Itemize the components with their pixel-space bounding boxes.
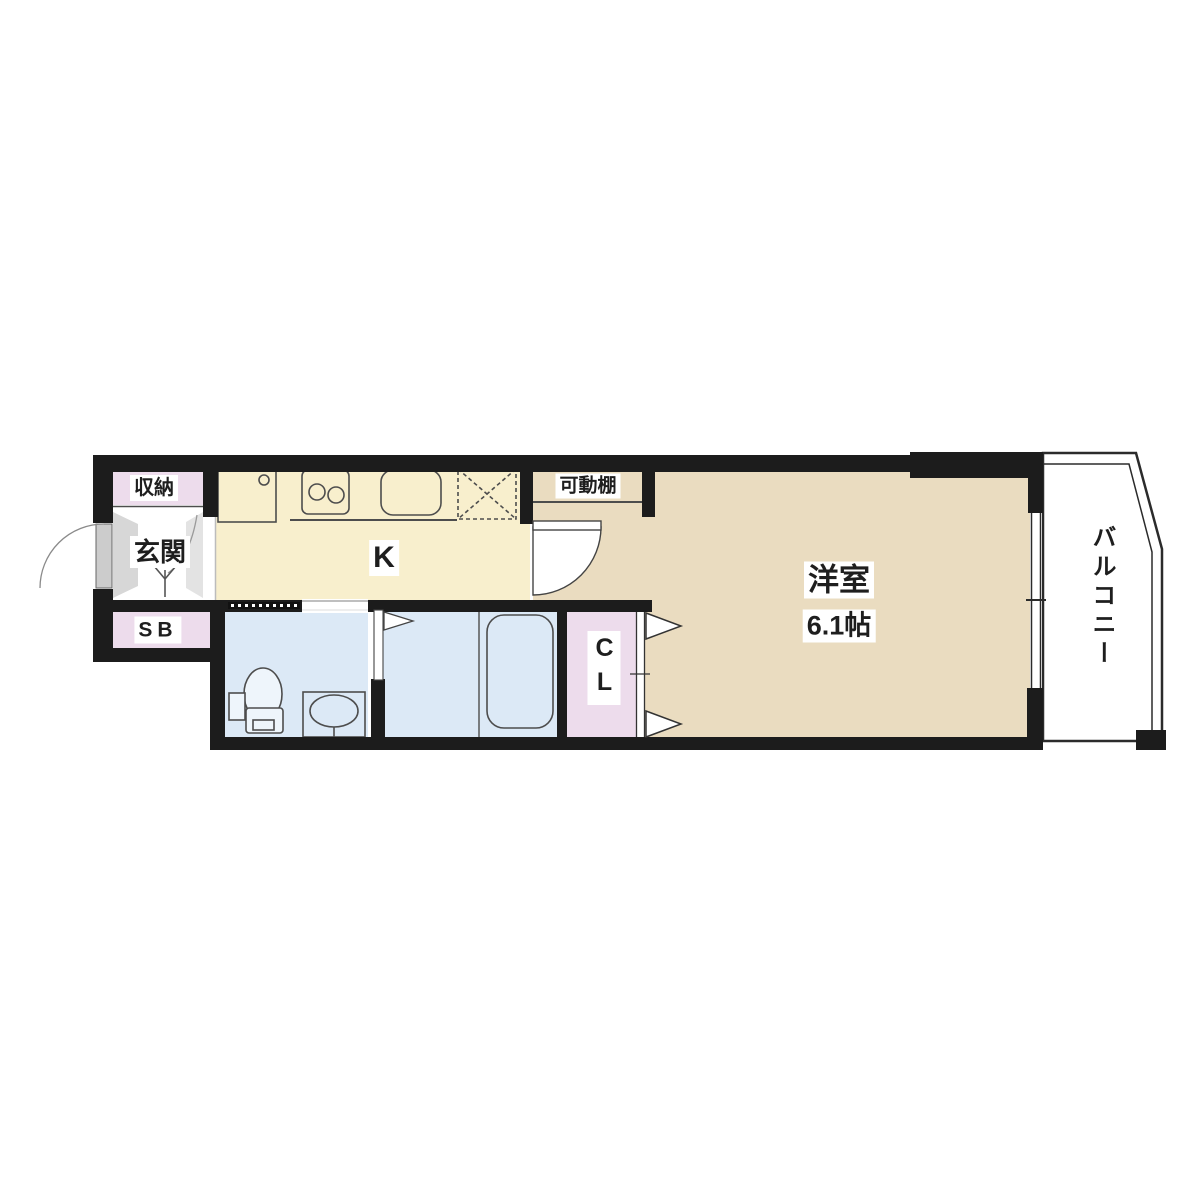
- bath-door-leaf: [374, 610, 383, 680]
- wall-right-upper: [1028, 452, 1043, 513]
- bath-room: [382, 612, 557, 737]
- storage-label: 収納: [130, 475, 178, 501]
- kitchen-room: [215, 468, 530, 600]
- entrance-label: 玄関: [130, 536, 190, 568]
- wall-washroom-left: [210, 612, 225, 750]
- wall-kitchen-hall-stub: [520, 455, 533, 524]
- entrance-door-arc: [40, 524, 104, 588]
- wall-toilet-bath-bottom: [371, 679, 385, 737]
- wall-balcony-stub: [1136, 730, 1166, 750]
- closet-label: CL: [588, 631, 621, 705]
- wall-sb-bottom: [93, 648, 225, 662]
- western-room-label: 洋室: [804, 562, 874, 599]
- western-room-size-label: 6.1帖: [803, 610, 876, 643]
- movable-shelf-label: 可動棚: [555, 474, 620, 499]
- wall-sb-top: [93, 600, 225, 612]
- kitchen-room-door-leaf: [533, 521, 601, 530]
- floor-plan-canvas: 収納 玄関 SB K 可動棚 洋室 6.1帖 CL バルコニー: [0, 0, 1200, 1200]
- wall-shelf-right-stub: [642, 455, 655, 517]
- wall-bottom-main: [210, 737, 1043, 750]
- entrance-door-leaf: [96, 524, 112, 588]
- floor-plan-drawing: [0, 0, 1200, 1200]
- shoe-box-label: SB: [134, 617, 181, 644]
- wall-top-right: [910, 452, 1035, 478]
- wall-left-upper: [93, 455, 113, 523]
- kitchen-label: K: [369, 540, 399, 576]
- balcony-label: バルコニー: [1085, 522, 1117, 673]
- wall-storage-right: [203, 455, 218, 517]
- wall-bath-closet: [557, 600, 567, 750]
- toilet-paper-holder-icon: [229, 693, 245, 720]
